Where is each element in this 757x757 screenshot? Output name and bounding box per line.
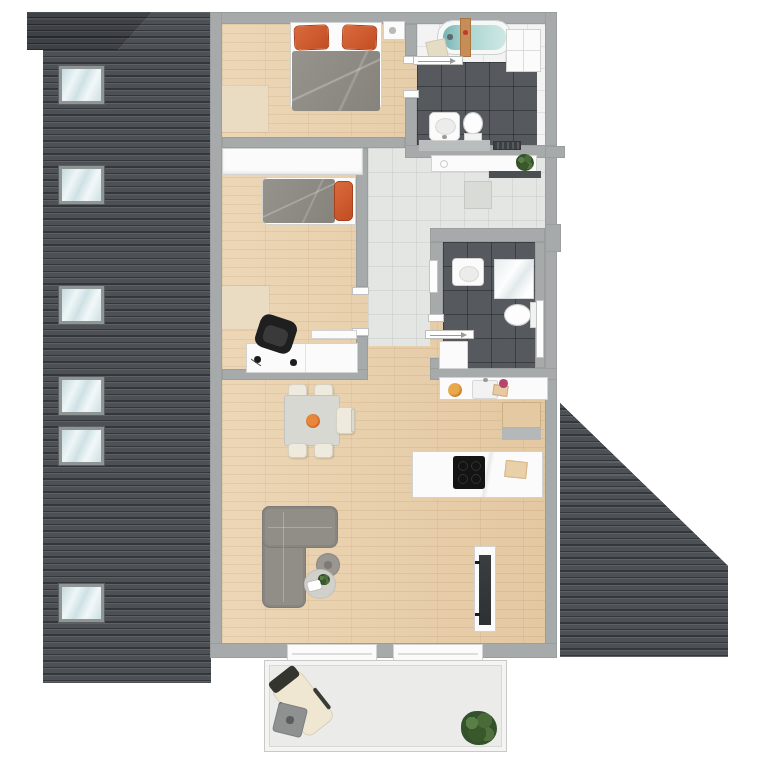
- burner: [471, 461, 481, 471]
- door-jamb-bed2-a: [352, 287, 369, 295]
- door-jamb-bath2-a: [428, 314, 444, 322]
- kitchen-faucet: [483, 378, 488, 382]
- fruit-bowl: [448, 383, 462, 397]
- floor-hallway-lower: [368, 242, 430, 346]
- skylight-5: [59, 427, 104, 465]
- dining-table: [284, 395, 340, 446]
- wall-tab-right-2: [545, 224, 561, 252]
- bed-double-pillow-left: [294, 24, 330, 50]
- toilet-cistern: [464, 133, 482, 141]
- shower-glass: [494, 259, 534, 299]
- sliding-door-bath2: [425, 330, 474, 339]
- bath1-shelf: [506, 29, 541, 72]
- dining-chair-bottom-left: [288, 443, 307, 458]
- washbasin-bath2: [452, 258, 484, 286]
- pink-dish: [499, 379, 508, 388]
- nightstand-decor: [389, 27, 396, 34]
- window-frame-line: [292, 653, 372, 655]
- coffee-table-round: [304, 569, 336, 599]
- window-frame-line: [398, 653, 478, 655]
- sideboard-bowl: [440, 160, 448, 168]
- table-knot: [285, 715, 295, 725]
- wall-left: [210, 12, 222, 658]
- toilet-bowl: [463, 112, 483, 134]
- radiator-bath2-left: [429, 260, 438, 293]
- roof-right: [560, 403, 728, 657]
- burner: [471, 474, 481, 484]
- bathtub-caddy: [460, 18, 471, 57]
- bathtub-faucet: [447, 34, 453, 40]
- nightstand: [383, 21, 405, 40]
- bed-single-pillow: [334, 181, 353, 221]
- burner: [458, 461, 468, 471]
- burner: [458, 474, 468, 484]
- bed-double-duvet: [292, 51, 380, 111]
- terrace-plant: [461, 711, 497, 745]
- door-leaf-bedroom2: [311, 330, 357, 339]
- skylight-6: [59, 584, 104, 622]
- cabinet-shelf: [502, 428, 541, 440]
- cutting-board: [504, 460, 528, 479]
- shower-tray: [439, 341, 468, 369]
- rug-bedroom1: [218, 86, 268, 132]
- wall-tab-right-1: [545, 146, 565, 158]
- dining-chair-end-back: [351, 409, 355, 432]
- tv-screen: [479, 555, 491, 625]
- wall-bed1-bath1-lower: [405, 98, 417, 146]
- roof-left: [43, 12, 211, 683]
- coffee-table-tray: [307, 579, 322, 591]
- office-chair-seat: [261, 324, 289, 349]
- desk-divider: [305, 344, 306, 372]
- desk-accessory: [290, 359, 297, 366]
- wall-bed1-bed2: [222, 137, 405, 148]
- slide-direction-arrow-icon: [418, 61, 450, 62]
- tv-foot-bottom: [475, 613, 480, 616]
- toilet-bath1: [463, 112, 483, 142]
- wall-bottom: [210, 643, 557, 658]
- skylight-1: [59, 66, 104, 104]
- basin-bowl: [459, 266, 479, 282]
- doormat: [464, 181, 492, 209]
- bed-single-duvet: [263, 179, 335, 223]
- caddy-item: [463, 30, 468, 35]
- entrance-door-leaf: [489, 171, 541, 178]
- kitchen-counter: [439, 377, 548, 400]
- basin-tap: [442, 135, 447, 139]
- washbasin-bath1: [429, 112, 460, 141]
- wall-bath2-top: [430, 228, 545, 242]
- basin-bowl: [435, 118, 456, 135]
- bed-double-pillow-right: [342, 24, 378, 50]
- bathtub: [437, 20, 512, 55]
- radiator-dark-bath1: [493, 141, 521, 150]
- slide-direction-arrow-icon: [430, 335, 461, 336]
- terrace: [264, 660, 507, 752]
- toilet-bowl: [504, 304, 531, 326]
- skylight-4: [59, 377, 104, 415]
- skylight-3: [59, 286, 104, 324]
- kitchen-island: [412, 451, 543, 498]
- wall-right: [545, 12, 557, 658]
- floor-plan-canvas: [0, 0, 757, 757]
- sofa-seam-v: [283, 512, 284, 602]
- dining-chair-bottom-right: [314, 443, 333, 458]
- hall-plant: [516, 154, 534, 171]
- cooktop: [453, 456, 485, 489]
- shelf-divider-h: [507, 50, 540, 51]
- wardrobe: [222, 148, 363, 175]
- tv-foot-top: [475, 561, 480, 564]
- side-table-item: [324, 561, 332, 569]
- wall-bed1-bath1-upper: [405, 24, 417, 56]
- center-bowl: [306, 414, 320, 428]
- radiator-bath2-right: [536, 300, 544, 358]
- skylight-2: [59, 166, 104, 204]
- tall-cabinet: [502, 402, 541, 428]
- sliding-door-bath1: [413, 56, 463, 65]
- door-jamb-bath1-b: [403, 90, 419, 98]
- sofa-seam-h: [268, 527, 332, 528]
